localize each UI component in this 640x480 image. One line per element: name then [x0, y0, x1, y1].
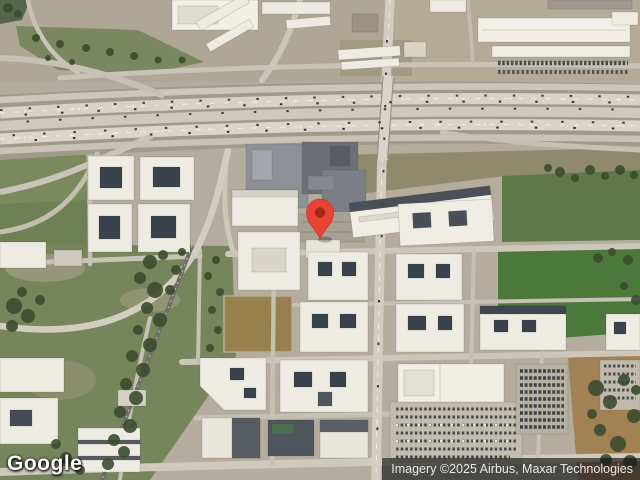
map-viewport[interactable]: Google Imagery ©2025 Airbus, Maxar Techn… [0, 0, 640, 480]
imagery-attribution: Imagery ©2025 Airbus, Maxar Technologies [382, 458, 640, 480]
google-logo[interactable]: Google [7, 452, 82, 476]
pin-inner-dot [315, 207, 325, 217]
satellite-imagery[interactable] [0, 0, 640, 480]
